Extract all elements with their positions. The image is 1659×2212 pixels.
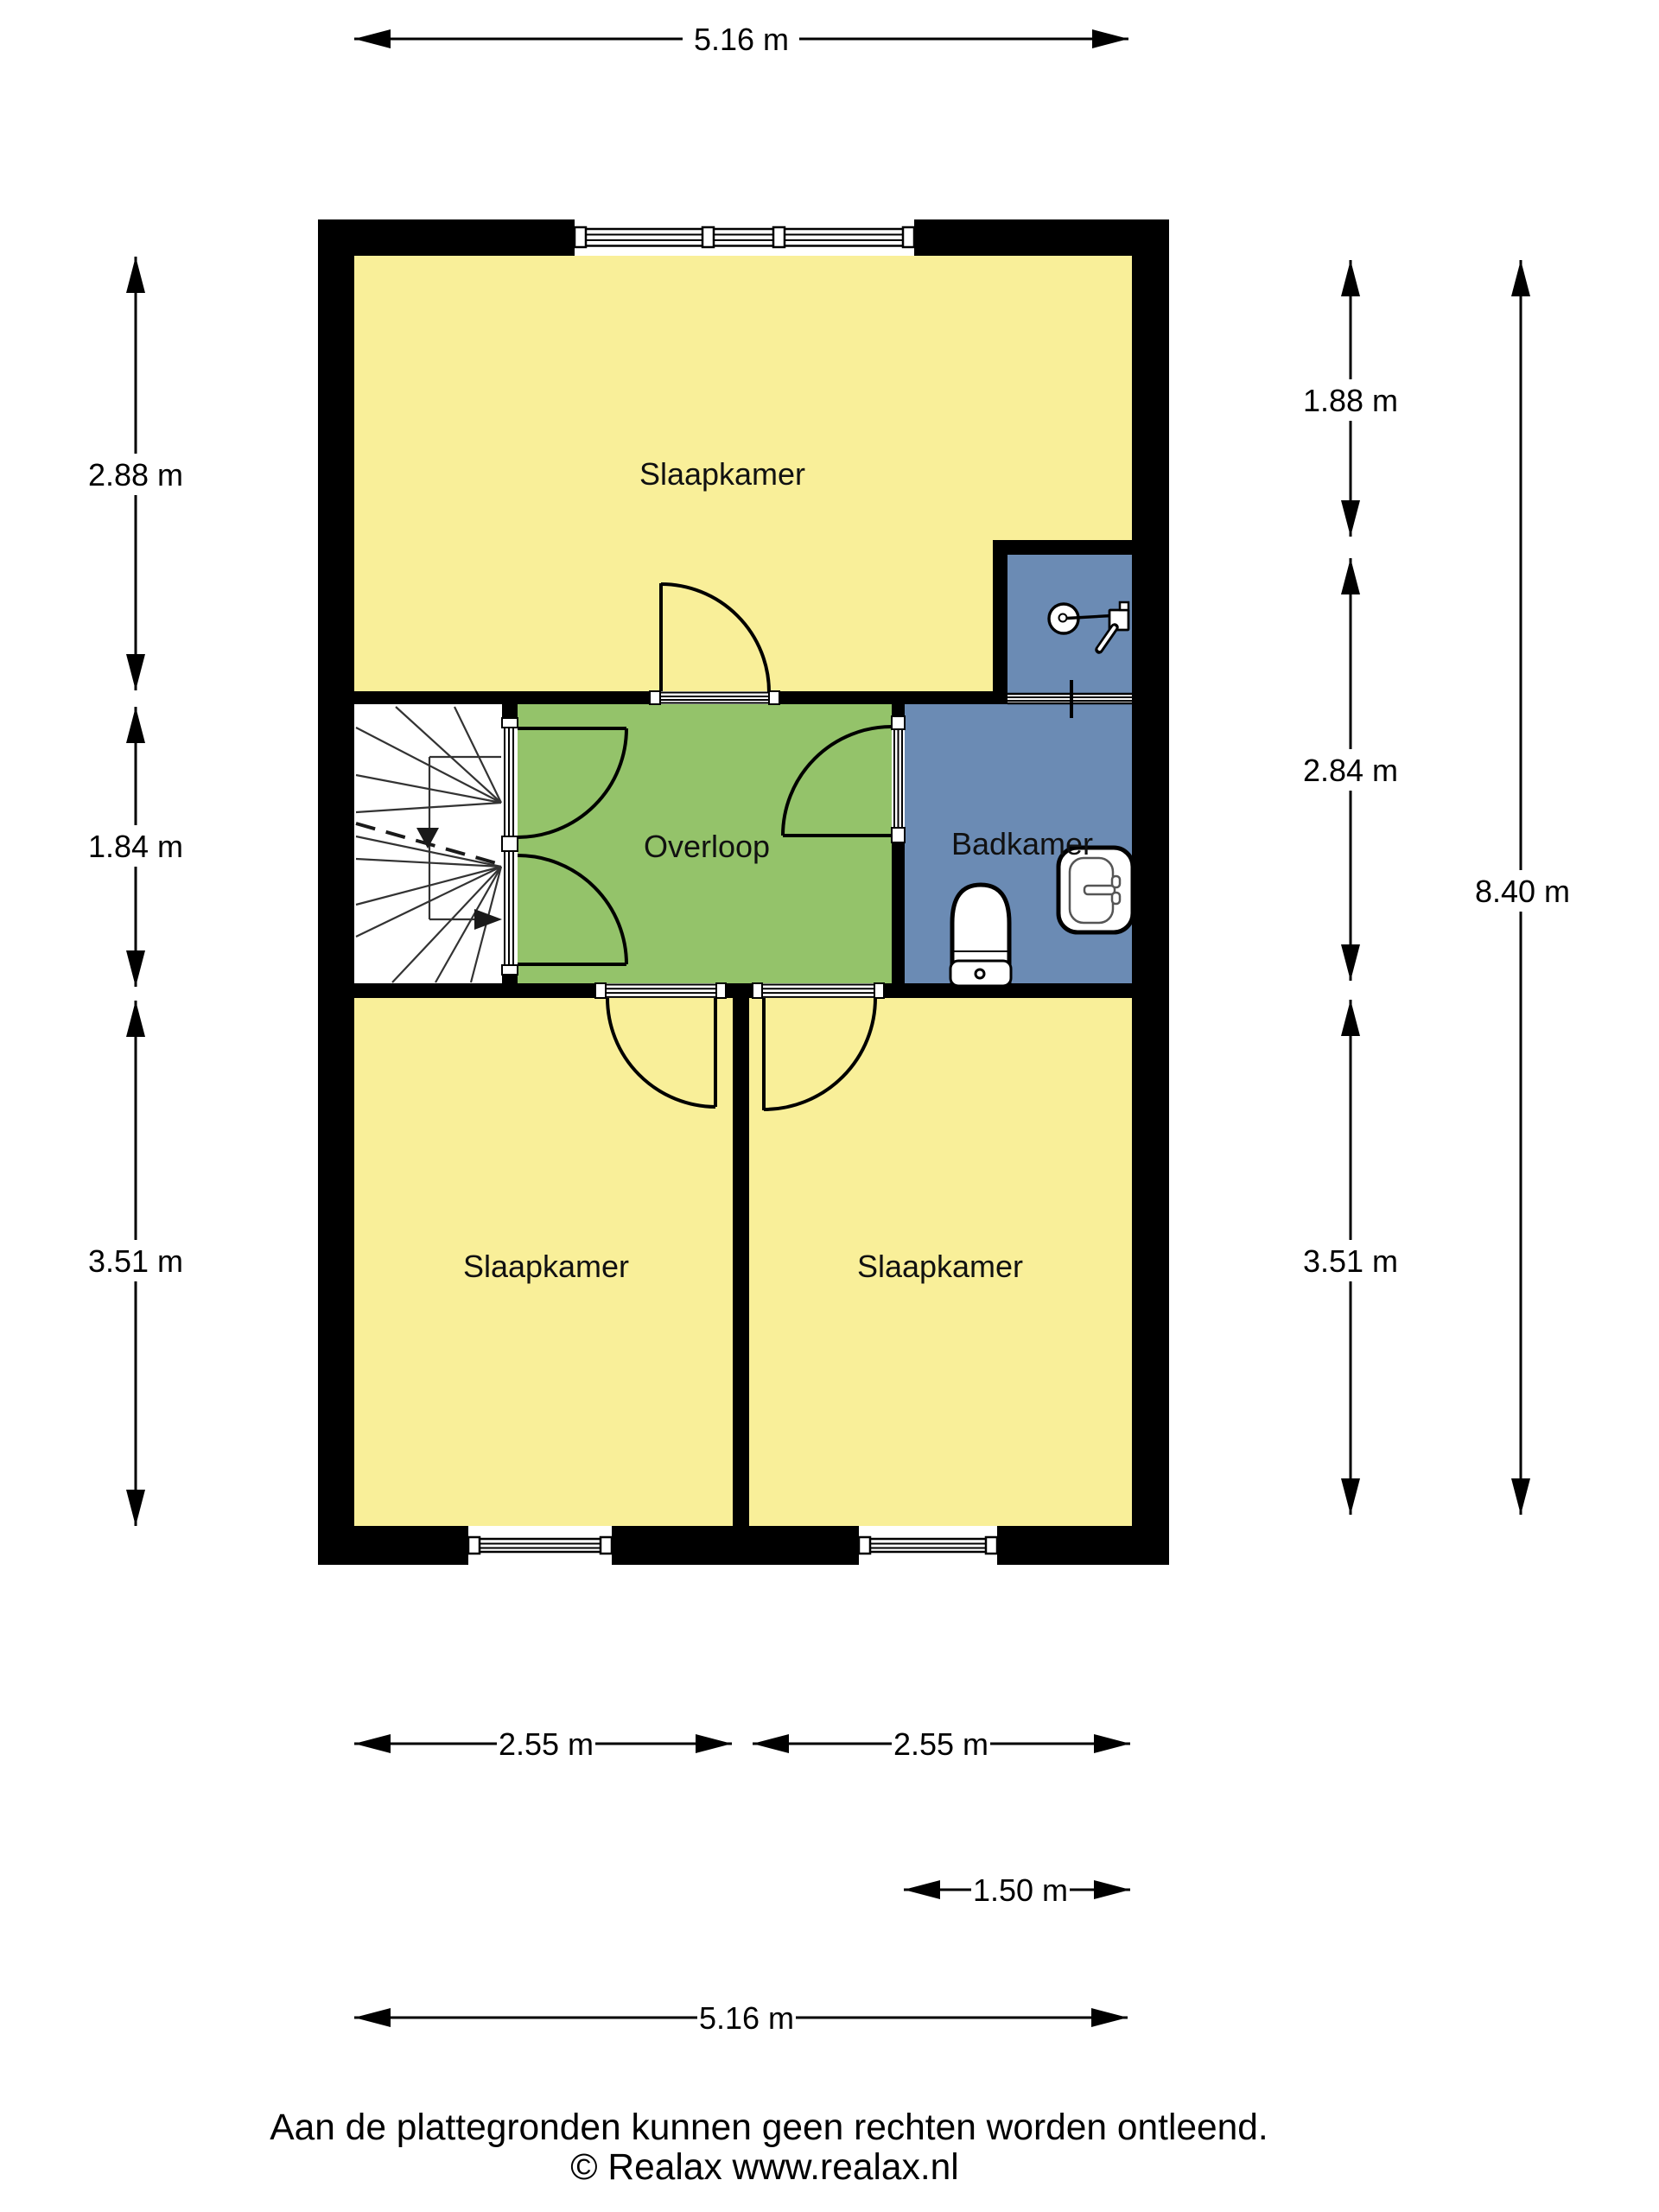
svg-text:5.16 m: 5.16 m [694,22,789,57]
svg-text:Badkamer: Badkamer [951,826,1093,861]
svg-text:1.84 m: 1.84 m [88,829,183,864]
svg-text:Slaapkamer: Slaapkamer [463,1249,629,1284]
svg-text:8.40 m: 8.40 m [1475,874,1570,909]
svg-text:3.51 m: 3.51 m [88,1243,183,1279]
svg-text:Overloop: Overloop [644,829,770,864]
svg-text:1.88 m: 1.88 m [1303,383,1398,418]
svg-text:2.55 m: 2.55 m [499,1726,594,1762]
svg-text:Slaapkamer: Slaapkamer [639,456,805,492]
svg-text:© Realax www.realax.nl: © Realax www.realax.nl [570,2147,958,2188]
svg-text:2.88 m: 2.88 m [88,457,183,493]
svg-text:Slaapkamer: Slaapkamer [857,1249,1023,1284]
svg-text:5.16 m: 5.16 m [699,2000,794,2036]
svg-text:2.84 m: 2.84 m [1303,753,1398,788]
svg-text:Aan de plattegronden kunnen ge: Aan de plattegronden kunnen geen rechten… [270,2107,1268,2148]
svg-text:2.55 m: 2.55 m [893,1726,988,1762]
svg-text:3.51 m: 3.51 m [1303,1243,1398,1279]
svg-text:1.50 m: 1.50 m [973,1872,1068,1908]
